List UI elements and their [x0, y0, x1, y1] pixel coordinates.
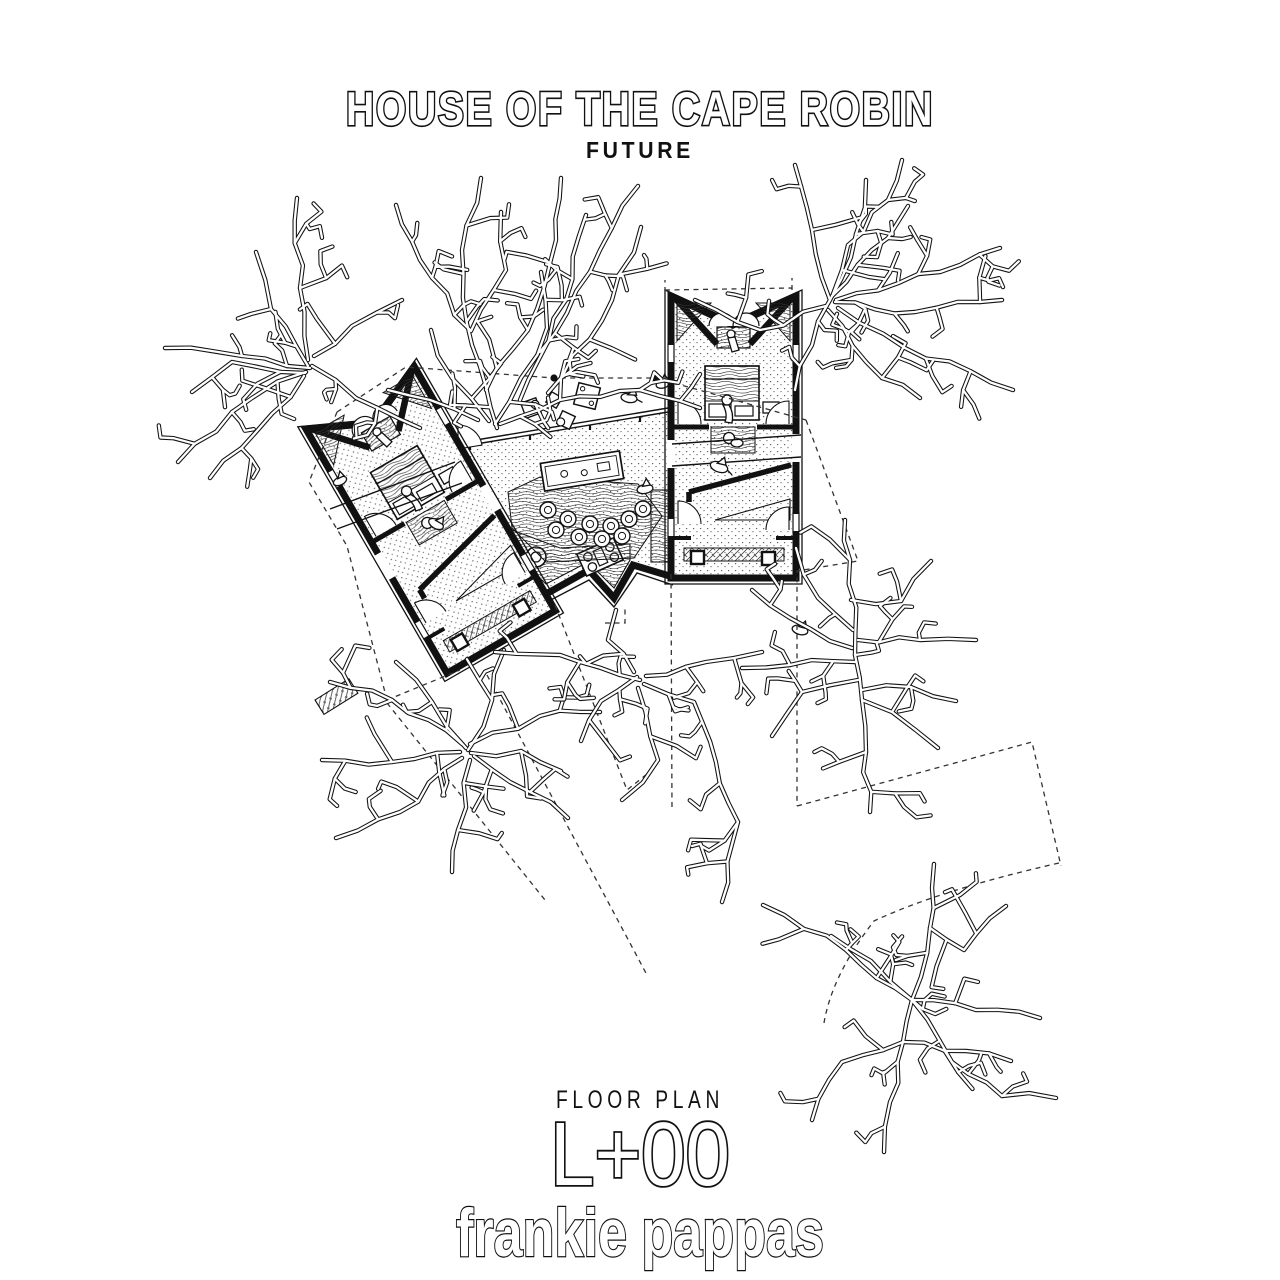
- svg-text:L+00: L+00: [550, 1105, 730, 1205]
- svg-text:HOUSE OF THE CAPE ROBIN: HOUSE OF THE CAPE ROBIN: [346, 82, 934, 135]
- svg-text:frankie pappas: frankie pappas: [456, 1195, 824, 1271]
- svg-text:FUTURE: FUTURE: [586, 137, 694, 163]
